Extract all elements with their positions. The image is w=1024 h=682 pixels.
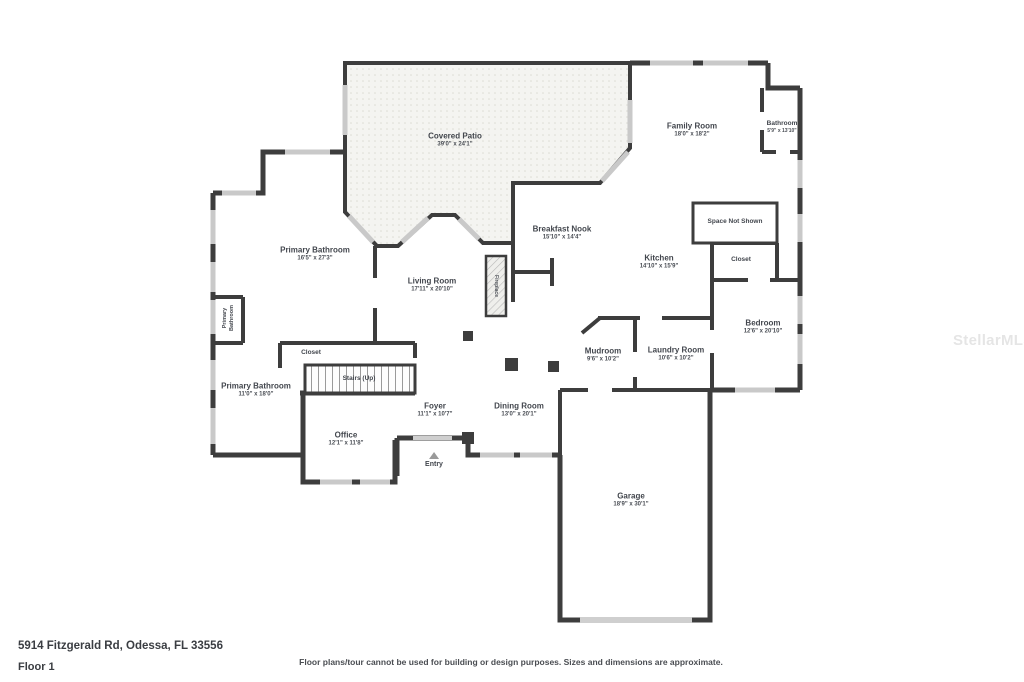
floorplan-page: Covered Patio 39'0" x 24'1" Family Room … (0, 0, 1024, 682)
property-address: 5914 Fitzgerald Rd, Odessa, FL 33556 (18, 640, 223, 652)
pillars (462, 331, 559, 444)
fireplace-box (486, 256, 506, 316)
stellar-mls-watermark: StellarMLS (953, 332, 1024, 349)
entry-label: Entry (425, 452, 443, 468)
disclaimer-text: Floor plans/tour cannot be used for buil… (299, 657, 723, 667)
space-not-shown-box (693, 203, 777, 243)
entry-arrow-icon (429, 452, 439, 459)
covered-patio-area (345, 63, 630, 246)
room-name: Entry (425, 461, 443, 468)
floor-label: Floor 1 (18, 661, 55, 673)
stairs-area (305, 365, 415, 393)
floorplan-drawing (0, 0, 1024, 682)
